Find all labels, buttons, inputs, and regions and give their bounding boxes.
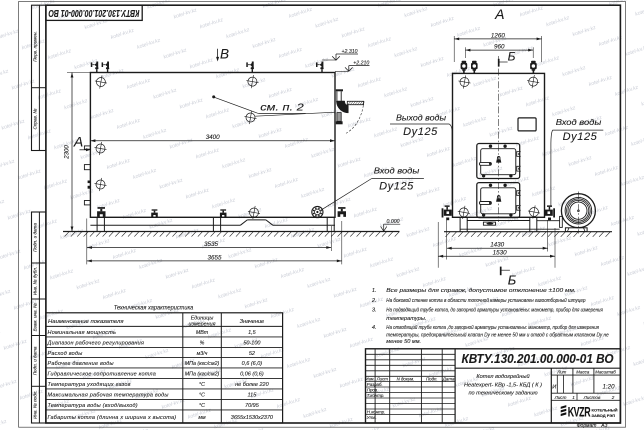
svg-text:температуры, предохранительный: температуры, предохранительный клапан Dу… [386,332,608,339]
svg-text:м3/ч: м3/ч [197,351,208,357]
svg-text:Heatexpert- КВр -1,5- КБД ( К: Heatexpert- КВр -1,5- КБД ( К ) [464,383,542,389]
svg-text:Температура уходящих газов: Температура уходящих газов [48,382,131,388]
svg-text:Подп. и дата: Подп. и дата [33,346,38,375]
svg-text:Котел водогрейный: Котел водогрейный [476,373,529,380]
svg-text:Лист: Лист [376,376,389,381]
svg-text:А: А [73,134,83,150]
svg-text:1430: 1430 [490,242,504,249]
svg-text:1.: 1. [372,288,377,294]
svg-text:см. п. 2: см. п. 2 [260,103,304,114]
svg-text:На отводящий трубе котла ,до з: На отводящий трубе котла ,до запорной ар… [386,324,599,331]
svg-text:Максимальная рабочая температу: Максимальная рабочая температура воды [48,393,169,399]
svg-text:Габариты котла (длинна х ширин: Габариты котла (длинна х ширина х высота… [48,415,177,421]
svg-text:Инв. № дубл.: Инв. № дубл. [33,267,38,295]
svg-text:Вход воды: Вход воды [374,167,420,176]
svg-text:Вход воды: Вход воды [556,118,602,127]
svg-text:Справ. №: Справ. № [33,109,38,130]
svg-text:Подп. и дата: Подп. и дата [33,223,38,252]
svg-text:+2.210: +2.210 [353,61,369,67]
svg-text:МПа (кгс/см2): МПа (кгс/см2) [185,372,220,378]
svg-text:ЗАВОД РЭП: ЗАВОД РЭП [592,413,616,418]
svg-text:Dy125: Dy125 [403,126,438,138]
svg-text:1530: 1530 [493,250,507,257]
svg-text:Инв. № подл.: Инв. № подл. [33,390,38,419]
svg-text:МПа (кгс/см2): МПа (кгс/см2) [185,361,220,367]
svg-text:менее 50 мм.: менее 50 мм. [386,339,421,345]
svg-text:Лист: Лист [554,395,567,400]
svg-text:1,5: 1,5 [248,330,257,336]
svg-text:И: И [552,385,556,391]
svg-text:А3: А3 [600,423,607,429]
svg-text:Расход воды: Расход воды [48,351,83,357]
svg-text:Dy125: Dy125 [563,131,598,143]
svg-text:%: % [200,341,205,347]
svg-text:1: 1 [572,395,575,400]
svg-text:115: 115 [248,393,258,399]
svg-text:измерения: измерения [189,321,216,327]
svg-text:+2.310: +2.310 [341,49,357,55]
svg-text:Все размеры для справок, допус: Все размеры для справок, допустимое откл… [386,288,576,294]
svg-text:Температура воды (вход/выход): Температура воды (вход/выход) [48,403,138,409]
svg-text:°С: °С [199,393,205,399]
svg-text:KVZR: KVZR [568,405,591,420]
svg-text:Подп.: Подп. [426,376,438,381]
svg-text:Лит: Лит [556,370,566,375]
svg-text:°С: °С [199,403,205,409]
svg-text:Перв. примен.: Перв. примен. [33,31,38,62]
svg-text:Утв.: Утв. [367,415,377,420]
svg-text:КВТУ.130.201.00.000-01 ВО: КВТУ.130.201.00.000-01 ВО [462,352,614,366]
svg-text:МВт: МВт [196,330,209,336]
svg-text:А: А [494,6,504,22]
svg-text:Наименование показателя: Наименование показателя [48,319,124,325]
svg-text:не более 220: не более 220 [235,382,270,388]
svg-text:Листов: Листов [583,395,601,400]
svg-text:Взам. инв. №: Взам. инв. № [33,303,38,331]
svg-text:Значение: Значение [240,319,265,325]
svg-text:Номинальная мощность: Номинальная мощность [48,330,117,336]
svg-text:2: 2 [611,395,615,400]
svg-text:3535: 3535 [204,241,218,248]
svg-text:Выход воды: Выход воды [396,113,446,122]
svg-text:3.: 3. [372,307,377,313]
svg-text:Б: Б [508,50,516,64]
svg-text:0,6 (6,0): 0,6 (6,0) [242,361,263,367]
svg-text:Дата: Дата [442,376,455,381]
svg-text:Масса: Масса [576,370,590,375]
svg-text:2300: 2300 [63,145,70,160]
svg-text:1260: 1260 [491,32,505,39]
svg-text:°С: °С [199,382,205,388]
svg-text:Гидравлическое сопротивление к: Гидравлическое сопротивление котла [48,372,157,378]
svg-text:температуры.: температуры. [386,316,426,322]
svg-text:N докум.: N докум. [397,376,415,381]
svg-text:4.: 4. [372,325,377,331]
svg-text:Dy125: Dy125 [379,181,414,193]
svg-text:Масштаб: Масштаб [595,370,616,375]
svg-text:КВТУ.130.201.00.000-01 ВО: КВТУ.130.201.00.000-01 ВО [48,7,139,18]
svg-text:52: 52 [249,351,255,357]
svg-text:Н.контр.: Н.контр. [367,410,386,415]
svg-text:Изм.: Изм. [365,376,374,381]
svg-text:мм: мм [198,415,206,421]
svg-text:2.: 2. [371,298,377,304]
svg-text:Т.контр.: Т.контр. [367,393,385,398]
svg-text:Диапазон рабочего регулировани: Диапазон рабочего регулирования [47,341,145,347]
svg-text:Пров.: Пров. [367,388,379,393]
svg-text:по техническому заданию: по техническому заданию [468,391,538,397]
svg-text:70/95: 70/95 [245,403,260,409]
svg-text:Формат: Формат [577,423,597,429]
svg-text:Разраб.: Разраб. [367,382,383,387]
svg-text:На подводящий трубе котла, д: На подводящий трубе котла, до запорной а… [386,306,603,313]
svg-text:3655х1530х2370: 3655х1530х2370 [231,415,274,421]
svg-text:На боковой стенке котла в обла: На боковой стенке котла в области топочн… [386,297,585,304]
svg-text:50-100: 50-100 [243,341,261,347]
svg-text:Б: Б [508,272,517,287]
svg-text:3655: 3655 [208,254,222,261]
svg-text:В: В [220,46,229,61]
svg-text:1:20: 1:20 [602,384,615,391]
svg-text:960: 960 [494,44,505,51]
svg-text:0,06 (0,6): 0,06 (0,6) [240,372,264,378]
svg-text:3400: 3400 [206,134,220,141]
svg-text:Техническая характеристика: Техническая характеристика [114,305,194,312]
svg-text:Рабочее давление воды: Рабочее давление воды [48,361,114,367]
